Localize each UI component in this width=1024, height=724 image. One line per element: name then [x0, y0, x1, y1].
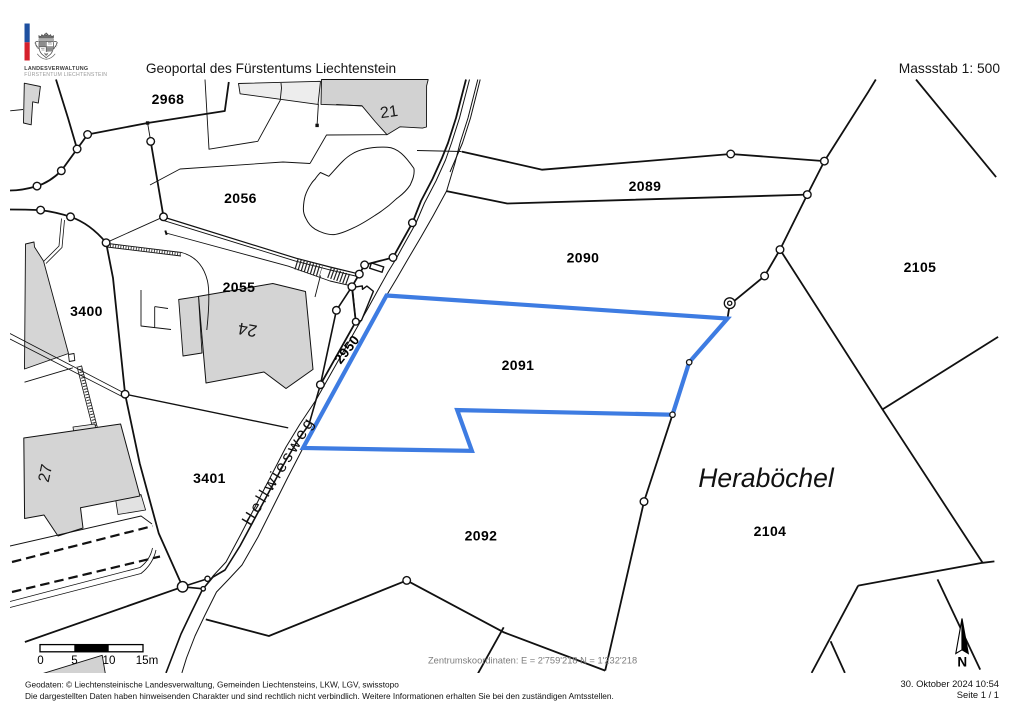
svg-text:2090: 2090 — [567, 250, 600, 266]
svg-text:5: 5 — [71, 654, 77, 667]
svg-text:Heraböchel: Heraböchel — [698, 463, 835, 493]
svg-text:3400: 3400 — [70, 303, 103, 319]
svg-text:Zentrumskoordinaten: E = 2'759: Zentrumskoordinaten: E = 2'759'218 N = 1… — [428, 656, 637, 666]
svg-text:Geoportal des Fürstentums Liec: Geoportal des Fürstentums Liechtenstein — [146, 61, 396, 76]
svg-text:10: 10 — [103, 654, 116, 667]
svg-text:0: 0 — [37, 654, 43, 667]
svg-text:2056: 2056 — [224, 190, 257, 206]
svg-text:2089: 2089 — [629, 178, 662, 194]
svg-text:Massstab 1: 500: Massstab 1: 500 — [899, 61, 1001, 76]
svg-text:2055: 2055 — [223, 279, 256, 295]
svg-text:27: 27 — [36, 463, 56, 484]
svg-text:3401: 3401 — [193, 470, 226, 486]
svg-text:2091: 2091 — [502, 357, 535, 373]
svg-text:Geodaten: © Liechtensteinische: Geodaten: © Liechtensteinische Landesver… — [25, 680, 399, 690]
svg-text:2105: 2105 — [904, 259, 937, 275]
svg-text:21: 21 — [379, 103, 399, 122]
svg-text:N: N — [957, 655, 967, 670]
svg-text:Die dargestellten Daten haben: Die dargestellten Daten haben hinweisend… — [25, 691, 614, 701]
svg-text:15m: 15m — [136, 654, 159, 667]
svg-text:24: 24 — [237, 319, 259, 341]
svg-text:Seite 1 / 1: Seite 1 / 1 — [957, 689, 999, 700]
svg-text:2104: 2104 — [754, 523, 787, 539]
svg-text:30. Oktober 2024 10:54: 30. Oktober 2024 10:54 — [900, 678, 999, 689]
svg-text:2968: 2968 — [152, 91, 185, 107]
svg-text:FÜRSTENTUM LIECHTENSTEIN: FÜRSTENTUM LIECHTENSTEIN — [24, 71, 107, 78]
svg-text:2092: 2092 — [465, 528, 498, 544]
